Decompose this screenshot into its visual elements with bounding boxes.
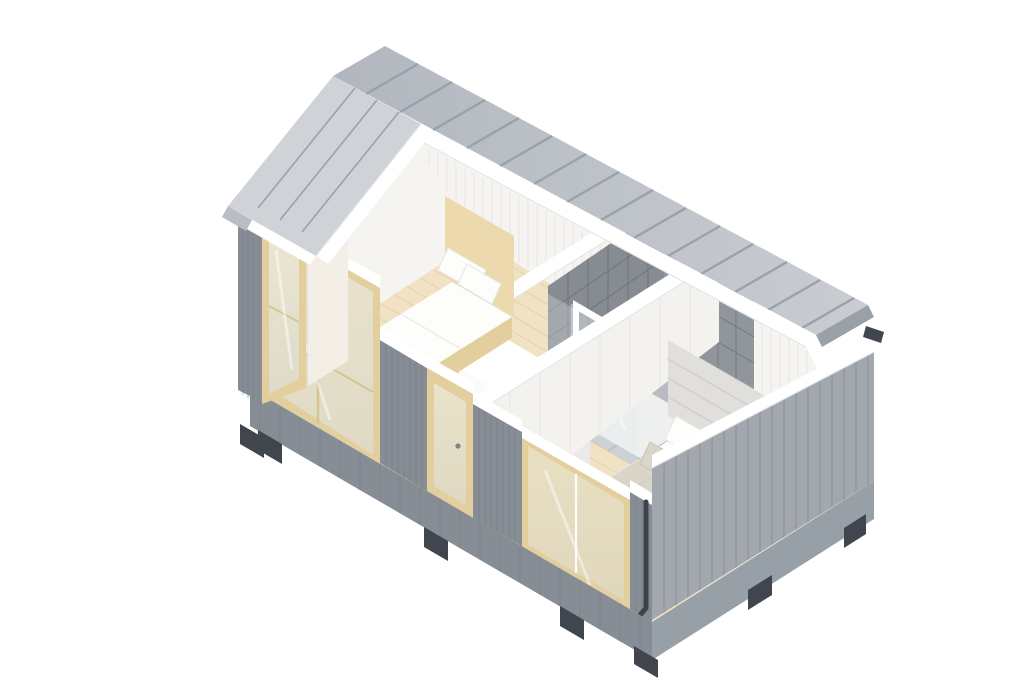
door-handle <box>455 443 460 448</box>
siding-pier-1 <box>380 328 427 491</box>
gutter-hook <box>863 326 884 343</box>
isometric-house-illustration <box>0 0 1024 683</box>
tiny-house-render <box>0 0 1024 683</box>
entrance-door-glass <box>434 383 466 505</box>
entrance-door <box>427 356 473 518</box>
corner-post <box>630 480 652 622</box>
